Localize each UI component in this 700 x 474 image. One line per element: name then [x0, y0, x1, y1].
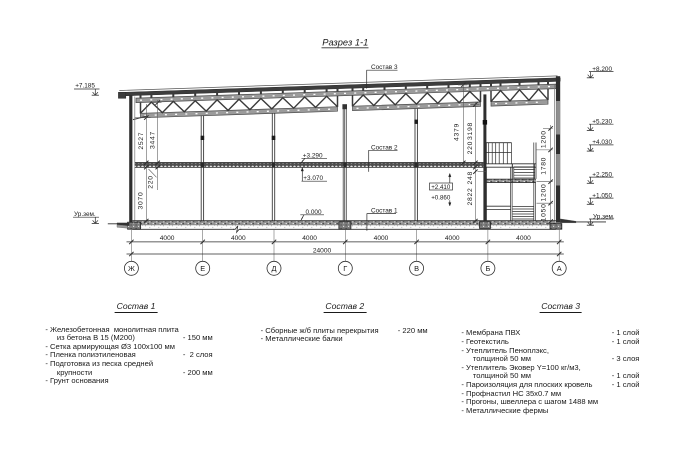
svg-text:2822: 2822 [467, 188, 474, 206]
svg-text:Б: Б [485, 264, 490, 273]
svg-text:+2.410: +2.410 [431, 184, 451, 191]
svg-text:Ур.зем.: Ур.зем. [74, 211, 96, 218]
svg-text:Д: Д [271, 264, 276, 273]
svg-text:220: 220 [467, 141, 474, 154]
svg-text:2527: 2527 [138, 132, 145, 150]
svg-text:А: А [557, 264, 562, 273]
svg-text:Ур.зем.: Ур.зем. [593, 213, 615, 220]
svg-text:24000: 24000 [313, 248, 332, 255]
svg-text:+8.200: +8.200 [592, 66, 612, 73]
svg-text:1780: 1780 [540, 157, 547, 175]
svg-text:Разрез 1-1: Разрез 1-1 [322, 37, 368, 47]
svg-text:3198: 3198 [467, 122, 474, 140]
svg-text:248: 248 [467, 171, 474, 184]
svg-text:1200: 1200 [540, 130, 547, 148]
svg-text:+2.250: +2.250 [592, 171, 612, 178]
svg-text:+5.230: +5.230 [592, 119, 612, 126]
svg-text:+0.860: +0.860 [431, 194, 451, 201]
svg-text:4000: 4000 [302, 235, 317, 242]
svg-text:4000: 4000 [160, 235, 175, 242]
svg-text:1200: 1200 [540, 184, 547, 202]
svg-text:4000: 4000 [445, 235, 460, 242]
svg-text:Ж: Ж [128, 264, 135, 273]
svg-text:+7.185: +7.185 [75, 83, 95, 90]
svg-text:В: В [414, 264, 419, 273]
svg-text:3447: 3447 [150, 131, 157, 149]
svg-text:4000: 4000 [516, 235, 531, 242]
svg-text:Г: Г [343, 264, 347, 273]
svg-text:4379: 4379 [454, 123, 461, 141]
svg-text:4000: 4000 [374, 235, 389, 242]
svg-text:4000: 4000 [231, 235, 246, 242]
svg-text:220: 220 [148, 175, 155, 188]
svg-text:3070: 3070 [137, 192, 144, 210]
svg-text:Е: Е [200, 264, 205, 273]
svg-text:+1.050: +1.050 [592, 192, 612, 199]
svg-text:+4.030: +4.030 [592, 139, 612, 146]
svg-text:1050: 1050 [540, 203, 547, 221]
